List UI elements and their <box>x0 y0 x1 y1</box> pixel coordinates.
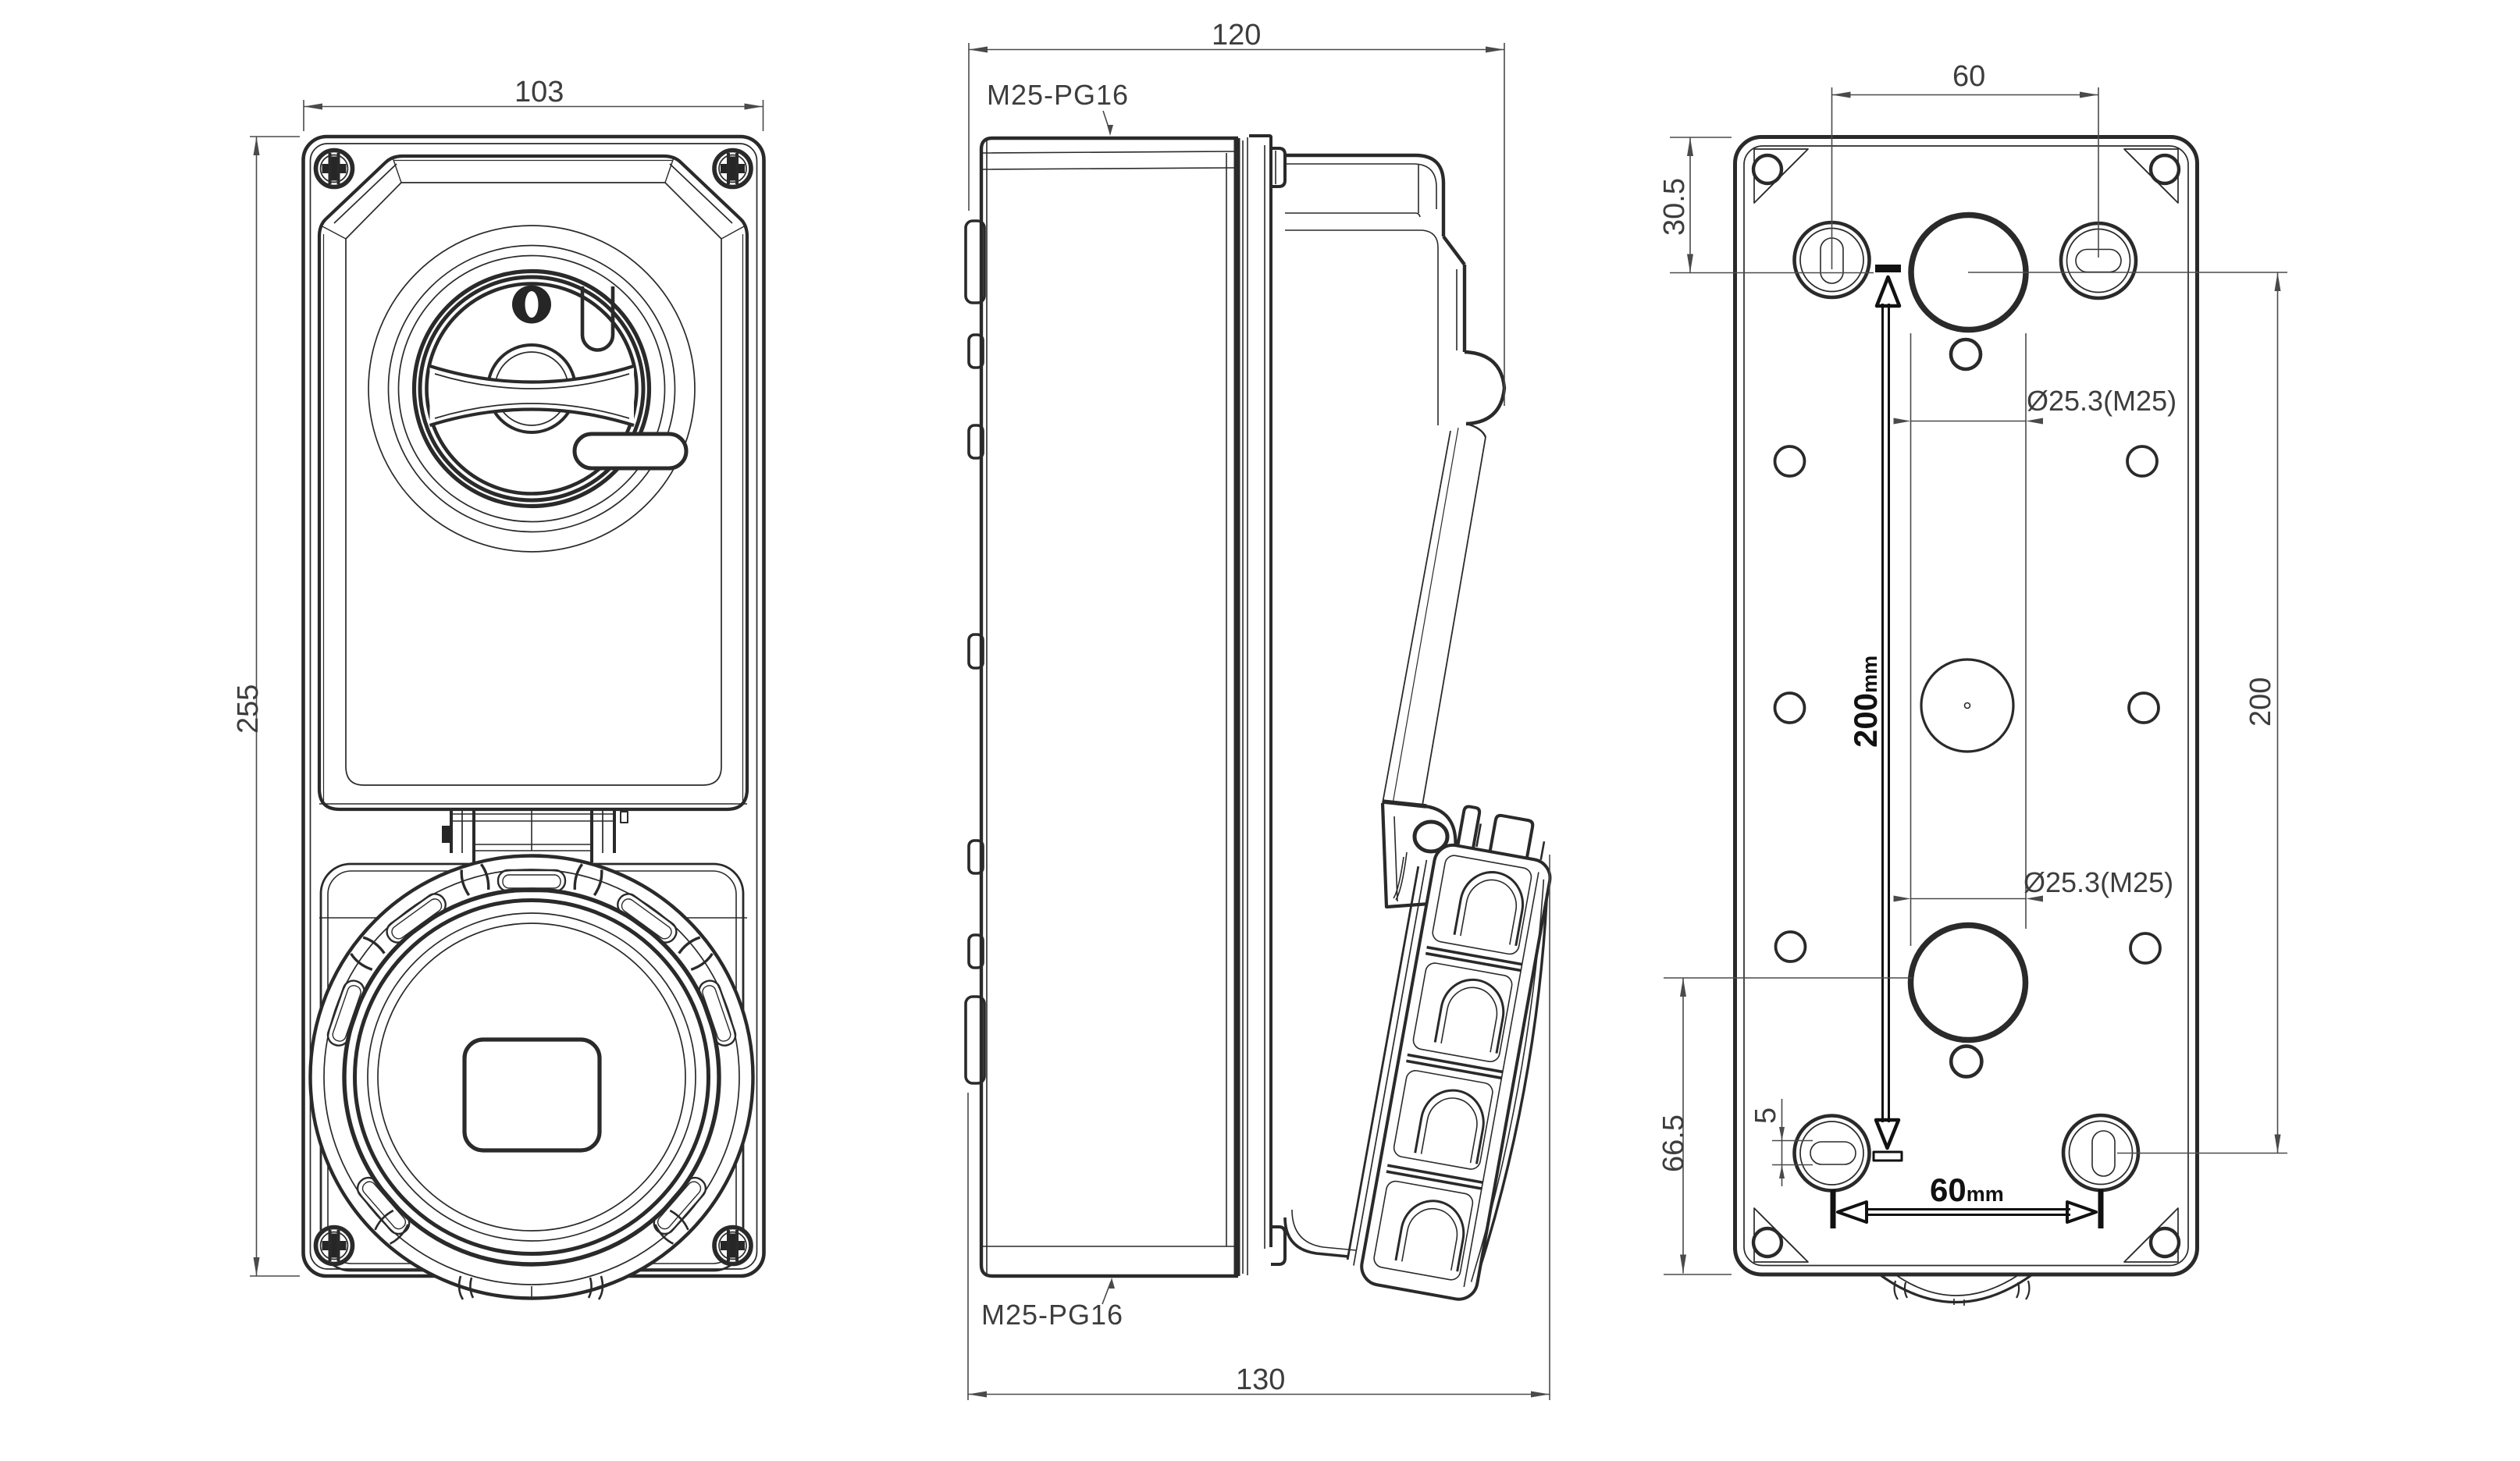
svg-text:120: 120 <box>1212 19 1261 52</box>
svg-text:66.5: 66.5 <box>1657 1114 1690 1172</box>
svg-text:255: 255 <box>232 684 265 734</box>
svg-text:M25-PG16: M25-PG16 <box>987 79 1129 111</box>
svg-text:M25-PG16: M25-PG16 <box>981 1299 1123 1331</box>
svg-text:130: 130 <box>1236 1363 1285 1396</box>
svg-text:103: 103 <box>514 76 564 108</box>
svg-text:60: 60 <box>1952 60 1985 93</box>
svg-text:Ø25.3(M25): Ø25.3(M25) <box>2023 866 2173 898</box>
svg-text:Ø25.3(M25): Ø25.3(M25) <box>2027 385 2177 417</box>
svg-text:200: 200 <box>2244 677 2277 727</box>
svg-text:30.5: 30.5 <box>1658 178 1691 236</box>
svg-text:5: 5 <box>1749 1107 1782 1124</box>
